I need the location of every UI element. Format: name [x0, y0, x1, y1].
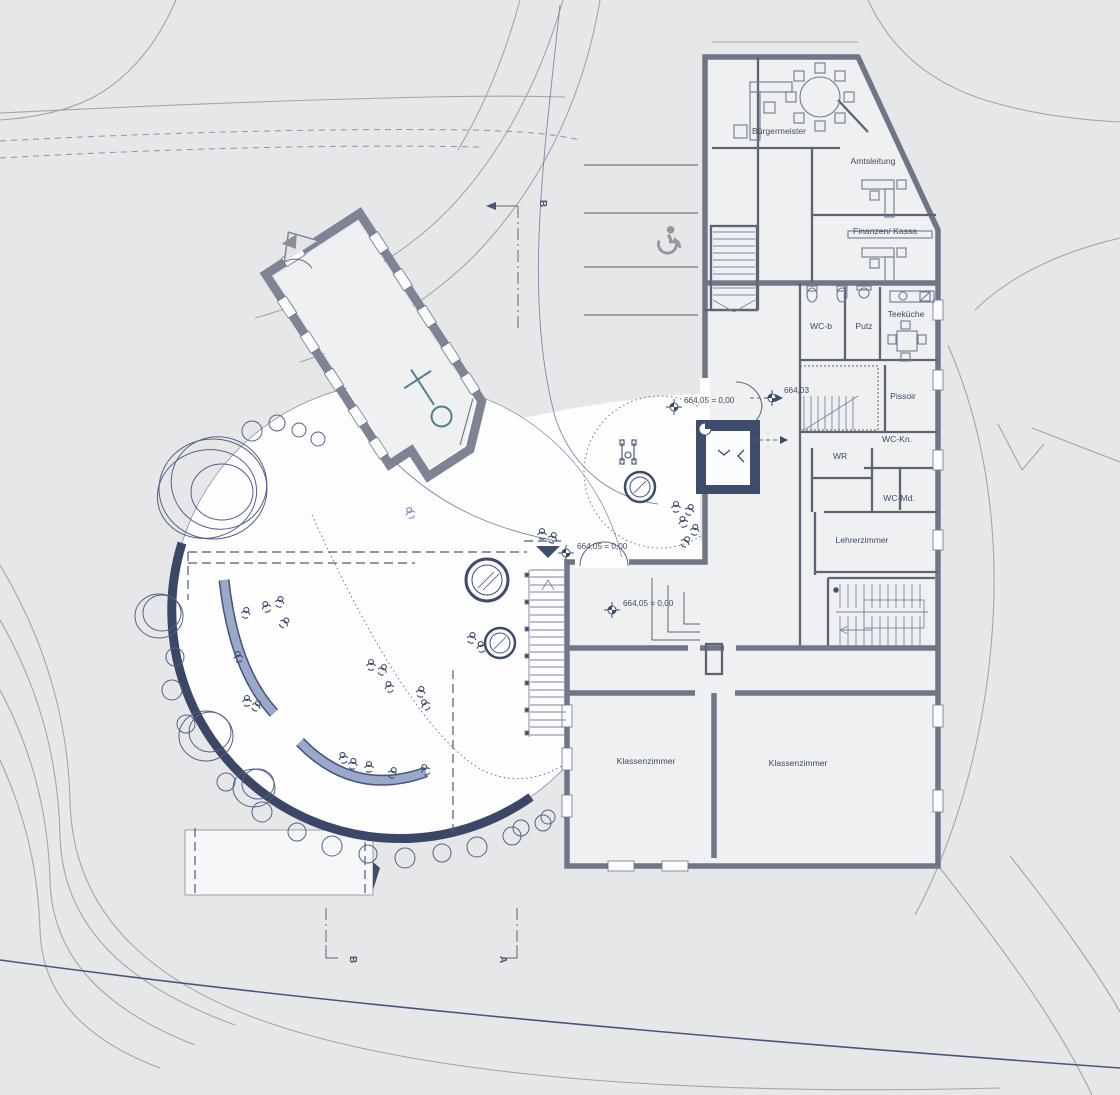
elevation-label-hall: 664,05 = 0,00 — [623, 599, 674, 608]
section-label-b-bottom: B — [347, 956, 358, 963]
room-label-pissoir: Pissoir — [890, 391, 916, 401]
room-label-finanzen-kassa: Finanzen/ Kassa — [853, 226, 917, 236]
retaining-structure — [185, 828, 380, 898]
room-label-teekueche: Teeküche — [888, 309, 925, 319]
section-label-b-top: B — [537, 200, 548, 207]
elevation-label-plaza-entry: 664,05 = 0,00 — [577, 542, 628, 551]
site-plan-drawing: 664,05 = 0,00 664,03 664,05 = 0,00 664,0… — [0, 0, 1120, 1095]
section-label-a-bottom: A — [497, 956, 508, 963]
room-label-amtsleitung: Amtsleitung — [851, 156, 896, 166]
room-label-wc-kn: WC-Kn. — [882, 434, 912, 444]
room-label-putz: Putz — [855, 321, 872, 331]
elevation-label-side-entry: 664,03 — [784, 386, 809, 395]
room-label-buergermeister: Bürgermeister — [752, 126, 806, 136]
room-label-klassenzimmer-2: Klassenzimmer — [769, 758, 828, 768]
room-label-wc-b: WC-b — [810, 321, 832, 331]
elevator — [696, 420, 760, 494]
elevation-label-court: 664,05 = 0,00 — [684, 396, 735, 405]
room-label-wc-md: WC-Md. — [883, 493, 915, 503]
room-label-lehrerzimmer: Lehrerzimmer — [835, 535, 888, 545]
room-label-klassenzimmer-1: Klassenzimmer — [617, 756, 676, 766]
site-plan-canvas: 664,05 = 0,00 664,03 664,05 = 0,00 664,0… — [0, 0, 1120, 1095]
room-label-wr: WR — [833, 451, 847, 461]
